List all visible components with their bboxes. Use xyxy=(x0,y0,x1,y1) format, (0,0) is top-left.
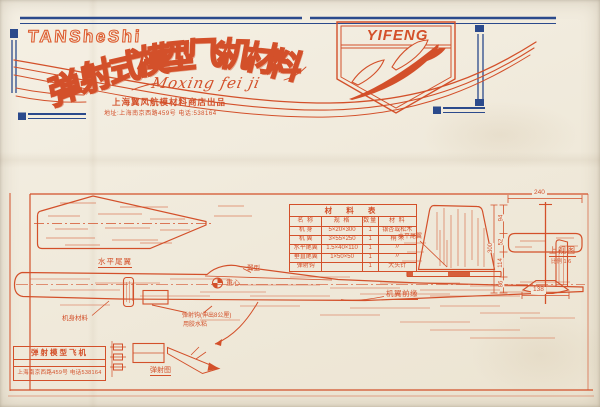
table-cell: 1 xyxy=(362,227,378,236)
title-block-address: 上海南京西路459号 电话538164 xyxy=(14,367,105,380)
stabilizer-pattern xyxy=(34,196,252,249)
col-header: 规 格 xyxy=(322,217,362,227)
hook-label-line2: 用胶水粘 xyxy=(183,322,207,328)
table-cell: 大头针 xyxy=(378,263,416,272)
dim-seg3: 114 xyxy=(498,258,504,268)
table-cell: 1 xyxy=(362,254,378,263)
glider-illustration xyxy=(349,40,446,100)
wood-grain xyxy=(437,208,484,268)
table-cell: 1 xyxy=(362,245,378,254)
dim-total-length: 300 xyxy=(488,243,494,253)
dim-stab-span: 138 xyxy=(531,287,546,294)
cg-symbol xyxy=(213,278,223,288)
table-cell: 1 xyxy=(362,236,378,245)
airfoil-label: 翼型 xyxy=(247,266,260,273)
launch-diagram-label: 弹射图 xyxy=(150,367,171,376)
table-cell: 垂直尾翼 xyxy=(290,254,322,263)
col-header: 材 料 xyxy=(378,217,416,227)
title-block-divider xyxy=(14,360,105,367)
table-cell: 机 身 xyxy=(290,227,322,236)
col-header: 名 称 xyxy=(290,217,322,227)
table-cell: 水平尾翼 xyxy=(290,245,322,254)
stab-edge-label: 水平尾翼 xyxy=(398,234,422,240)
fuselage-label: 机身材料 xyxy=(62,316,88,323)
table-cell: 〃 xyxy=(378,254,416,263)
table-cell xyxy=(322,263,362,272)
title-block-name: 弹射模型飞机 xyxy=(14,347,105,360)
dim-tail-span: 240 xyxy=(532,190,547,197)
cg-label: 重心 xyxy=(226,280,240,287)
table-cell: 弹射钩 xyxy=(290,263,322,272)
hook-detail xyxy=(143,291,168,305)
scale-note: 比例 1:6 xyxy=(551,260,571,266)
dim-seg2: 52 xyxy=(498,239,504,246)
dim-seg4: 86 xyxy=(498,281,504,288)
table-cell: 〃 xyxy=(378,245,416,254)
table-cell: 1×50×50 xyxy=(322,254,362,263)
address-line: 地址:上海南京西路459号 电话:538164 xyxy=(104,108,217,117)
hook-label-line1: 弹射钩(伸出8公厘) xyxy=(182,313,231,319)
table-cell: 1.5×40×110 xyxy=(322,245,362,254)
badge-brand-text: YIFENG xyxy=(344,27,451,44)
title-block: 弹射模型飞机 上海南京西路459号 电话538164 xyxy=(13,346,106,381)
table-cell: 1 xyxy=(362,263,378,272)
table-cell: 5×20×300 xyxy=(322,227,362,236)
pinyin-script-text: Moxing fei ji xyxy=(150,74,262,92)
fin-pattern xyxy=(407,206,501,277)
stabilizer-label: 水平尾翼 xyxy=(98,258,132,268)
table-cell: 3×55×250 xyxy=(322,236,362,245)
top-view-label: 上视图 xyxy=(549,247,576,257)
dim-seg1: 94 xyxy=(498,215,504,222)
slot-piece xyxy=(124,278,134,307)
wing-leading-edge-label: 机翼前缘 xyxy=(386,290,418,300)
kit-plan-sheet: TANSheShi 弹 射 式 模 型 飞 机 材 料 Moxing fei j… xyxy=(0,0,600,407)
wood-grain xyxy=(46,203,252,245)
table-cell: 机 翼 xyxy=(290,236,322,245)
col-header: 数量 xyxy=(362,217,378,227)
table-title: 材 料 表 xyxy=(290,205,417,217)
store-line: 上海翼风航模材料商店出品 xyxy=(112,96,226,108)
